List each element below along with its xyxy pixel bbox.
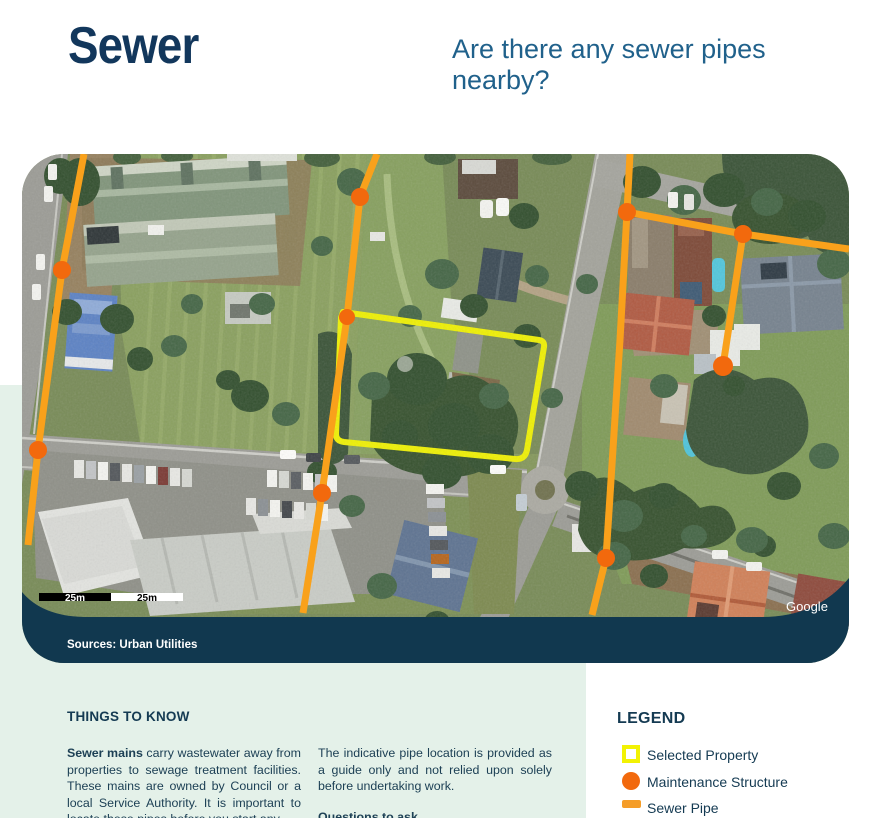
svg-text:25m: 25m: [65, 593, 85, 604]
svg-text:Google: Google: [786, 599, 828, 614]
svg-text:Sources: Urban Utilities: Sources: Urban Utilities: [67, 639, 197, 651]
svg-text:25m: 25m: [137, 593, 157, 604]
